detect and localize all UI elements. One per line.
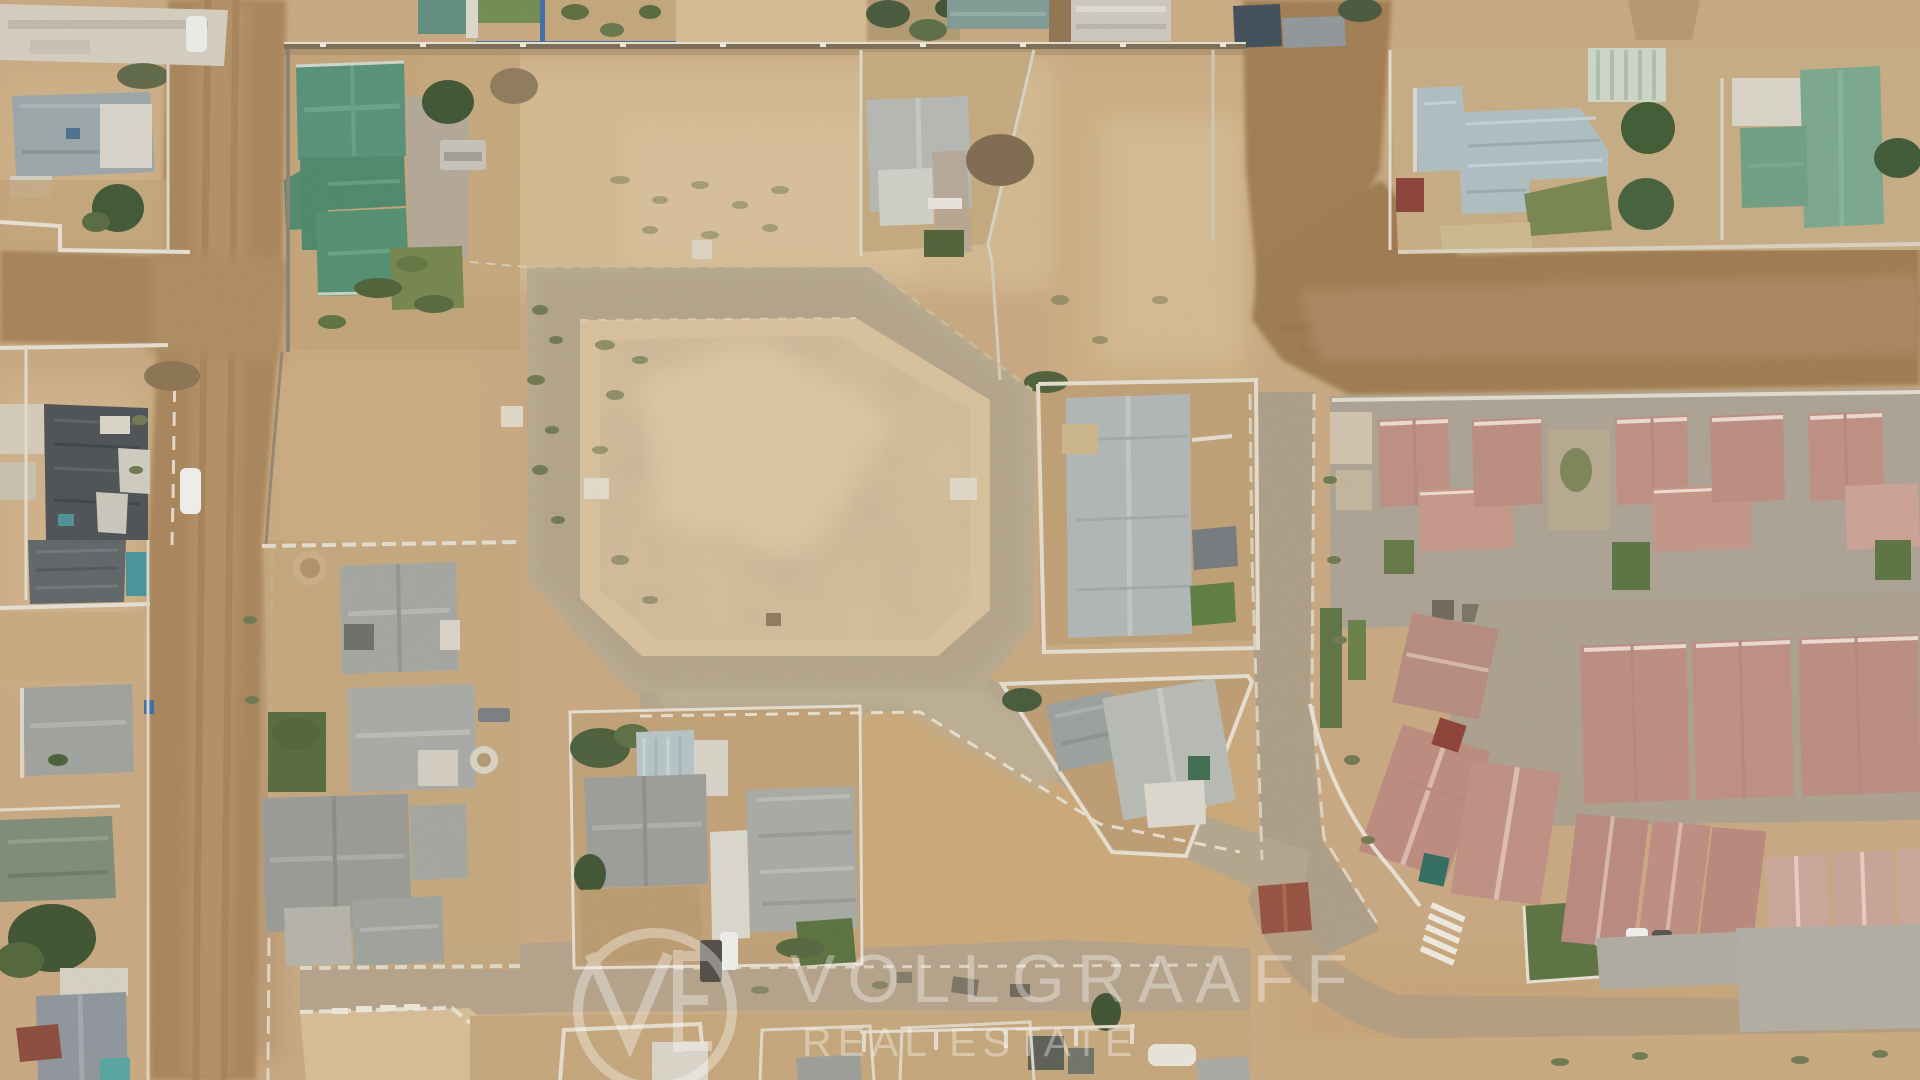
svg-text:VOLLGRAAFF: VOLLGRAAFF	[790, 941, 1360, 1017]
svg-text:REAL ESTATE: REAL ESTATE	[802, 1019, 1138, 1065]
